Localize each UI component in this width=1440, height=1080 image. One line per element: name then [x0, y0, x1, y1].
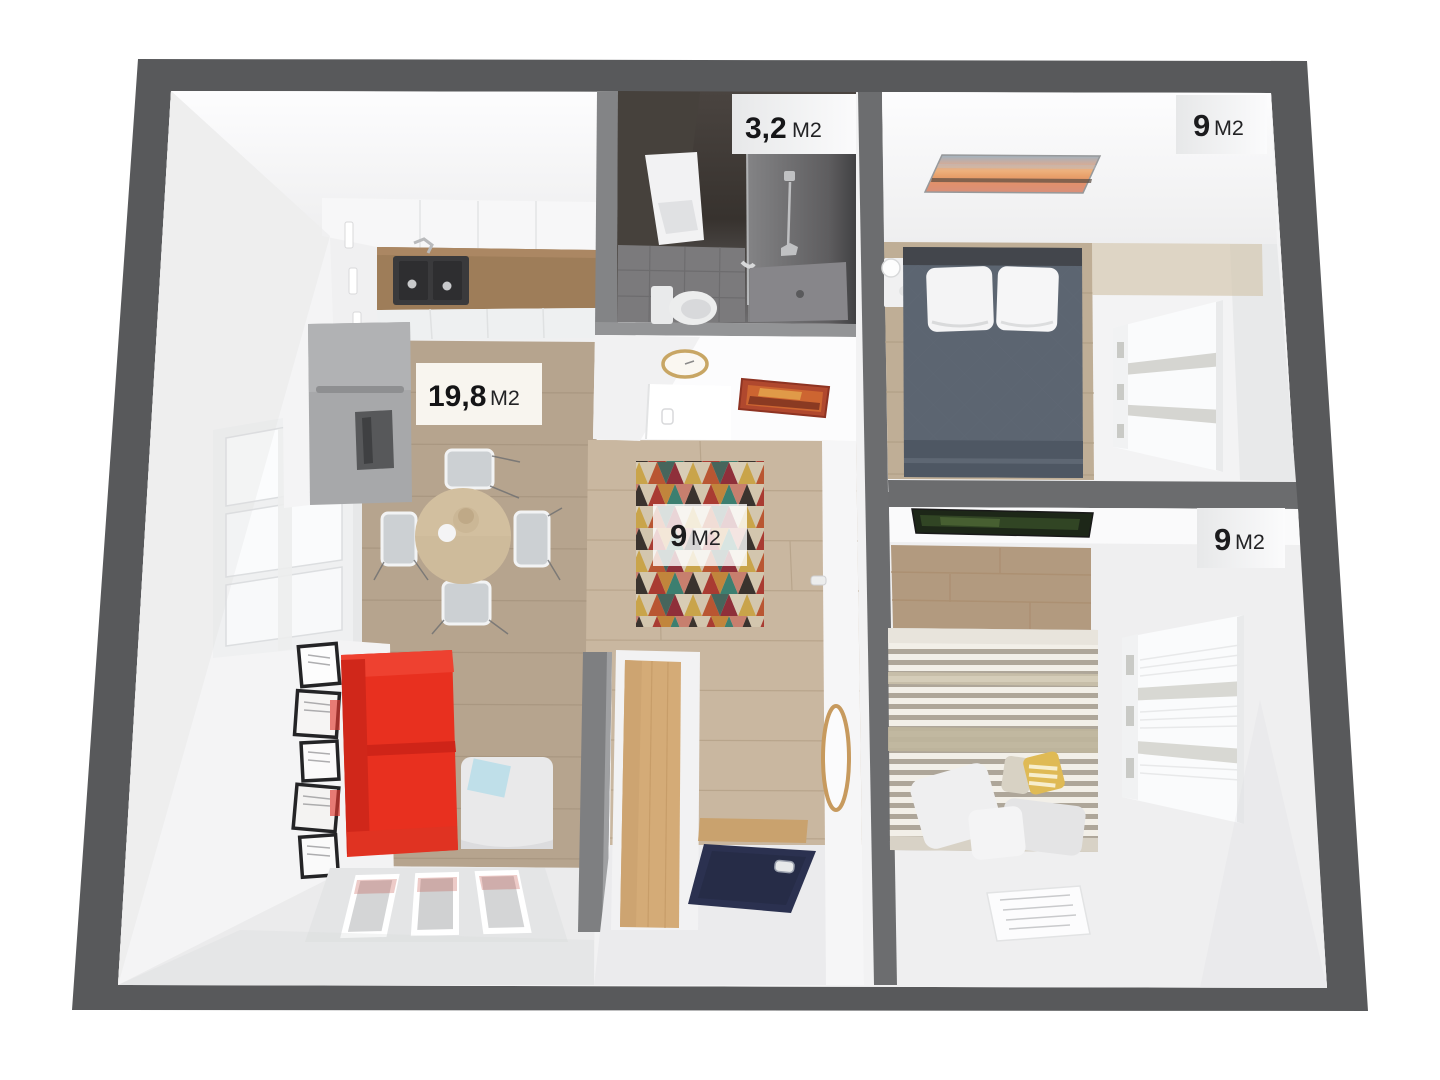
svg-text:9: 9: [1193, 108, 1210, 143]
svg-text:9: 9: [1214, 522, 1231, 557]
svg-text:19,8: 19,8: [428, 380, 486, 413]
svg-text:М2: М2: [792, 118, 822, 142]
svg-text:М2: М2: [490, 386, 520, 410]
svg-text:М2: М2: [1214, 116, 1244, 140]
svg-text:3,2: 3,2: [745, 112, 787, 145]
svg-text:М2: М2: [691, 526, 721, 550]
svg-text:9: 9: [670, 518, 687, 553]
svg-text:М2: М2: [1235, 530, 1265, 554]
